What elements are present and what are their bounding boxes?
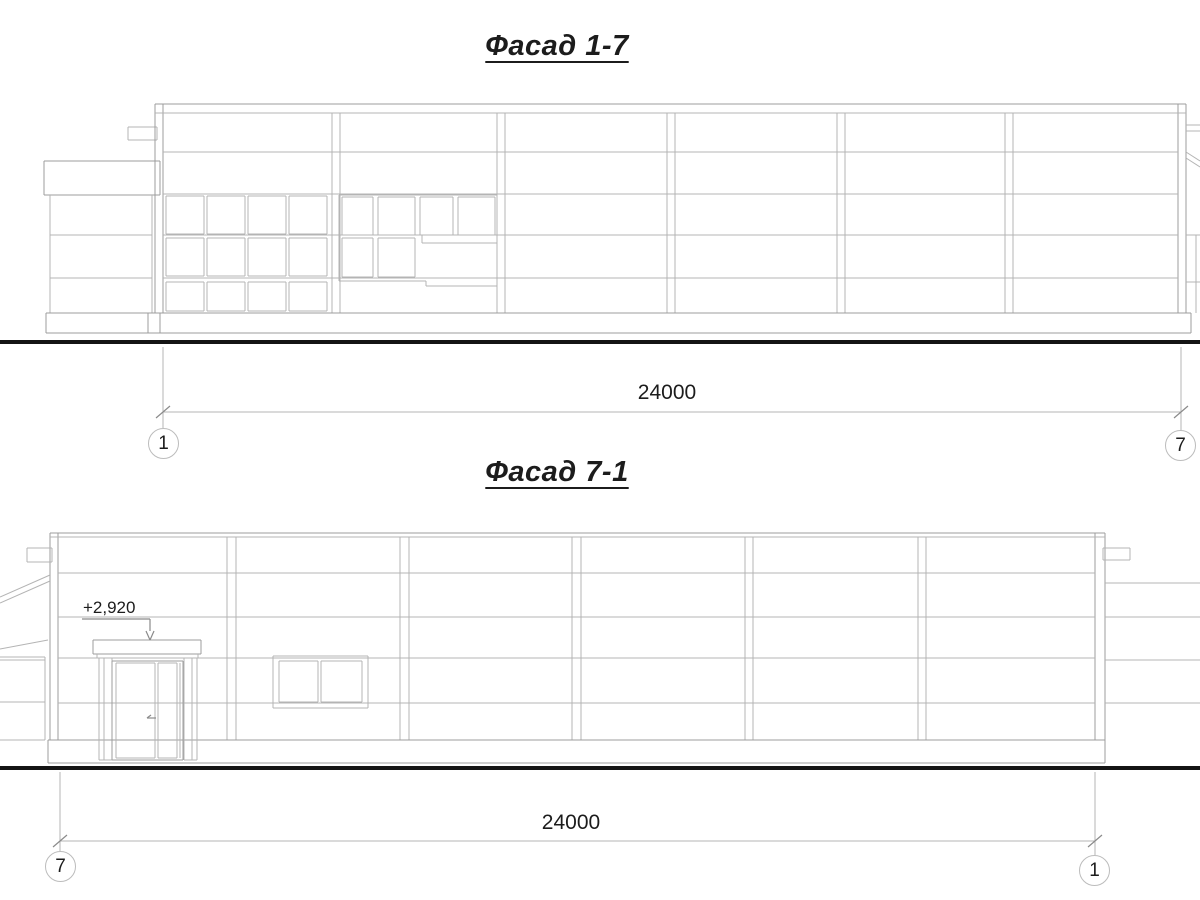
axis-bubble-7-1-left: 7: [45, 851, 76, 882]
facade-1-7-dimension-label: 24000: [567, 381, 767, 405]
elevation-mark-label: +2,920: [83, 598, 135, 618]
axis-bubble-7-1-right: 1: [1079, 855, 1110, 886]
facade-7-1-title: Фасад 7-1: [407, 456, 707, 489]
facade-linework: [0, 0, 1200, 900]
axis-bubble-1-7-right: 7: [1165, 430, 1196, 461]
facade-1-7-title: Фасад 1-7: [407, 30, 707, 63]
elevation-drawing-sheet: Фасад 1-7 24000 1 7 Фасад 7-1 +2,920 240…: [0, 0, 1200, 900]
axis-bubble-1-7-left: 1: [148, 428, 179, 459]
facade-7-1-dimension-label: 24000: [471, 811, 671, 835]
